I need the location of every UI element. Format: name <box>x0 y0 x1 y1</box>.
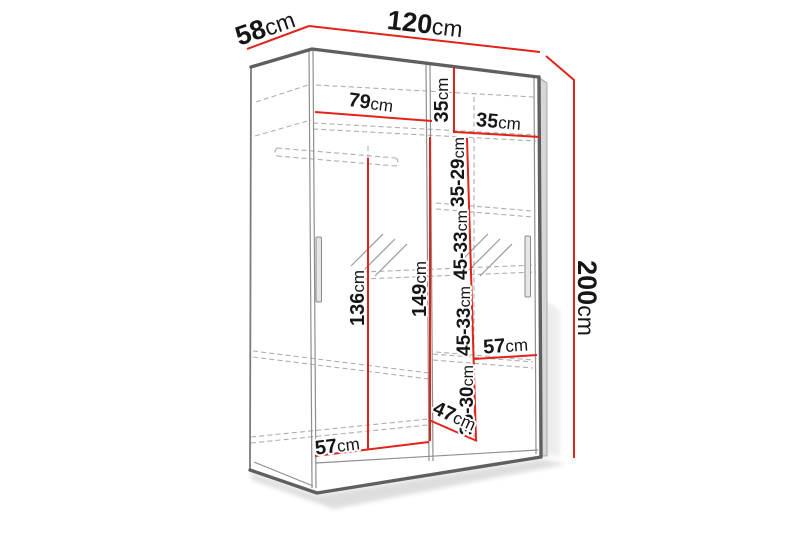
right-outer-edge <box>539 77 541 456</box>
label-136: 136cm <box>347 270 369 326</box>
label-height-200: 200cm <box>572 260 602 336</box>
door-handle-right <box>525 236 531 297</box>
wardrobe-dimension-diagram: 58cm 120cm 200cm 79cm 35cm 35cm 35-29cm … <box>0 0 800 533</box>
diagram-canvas: 58cm 120cm 200cm 79cm 35cm 35cm 35-29cm … <box>0 0 800 533</box>
left-outer-edge <box>250 67 251 470</box>
label-57-upper: 57cm <box>482 333 528 358</box>
door-handle-left <box>316 237 322 302</box>
label-35-vertical: 35cm <box>431 78 453 123</box>
label-width-120: 120cm <box>386 5 465 43</box>
label-shelf-gap-3: 45-33cm <box>454 286 475 356</box>
label-149: 149cm <box>409 261 431 317</box>
left-side-panel <box>250 49 315 488</box>
label-depth-58: 58cm <box>231 3 298 51</box>
label-shelf-gap-2: 45-33cm <box>451 210 472 280</box>
label-shelf-gap-1: 35-29cm <box>448 137 469 207</box>
